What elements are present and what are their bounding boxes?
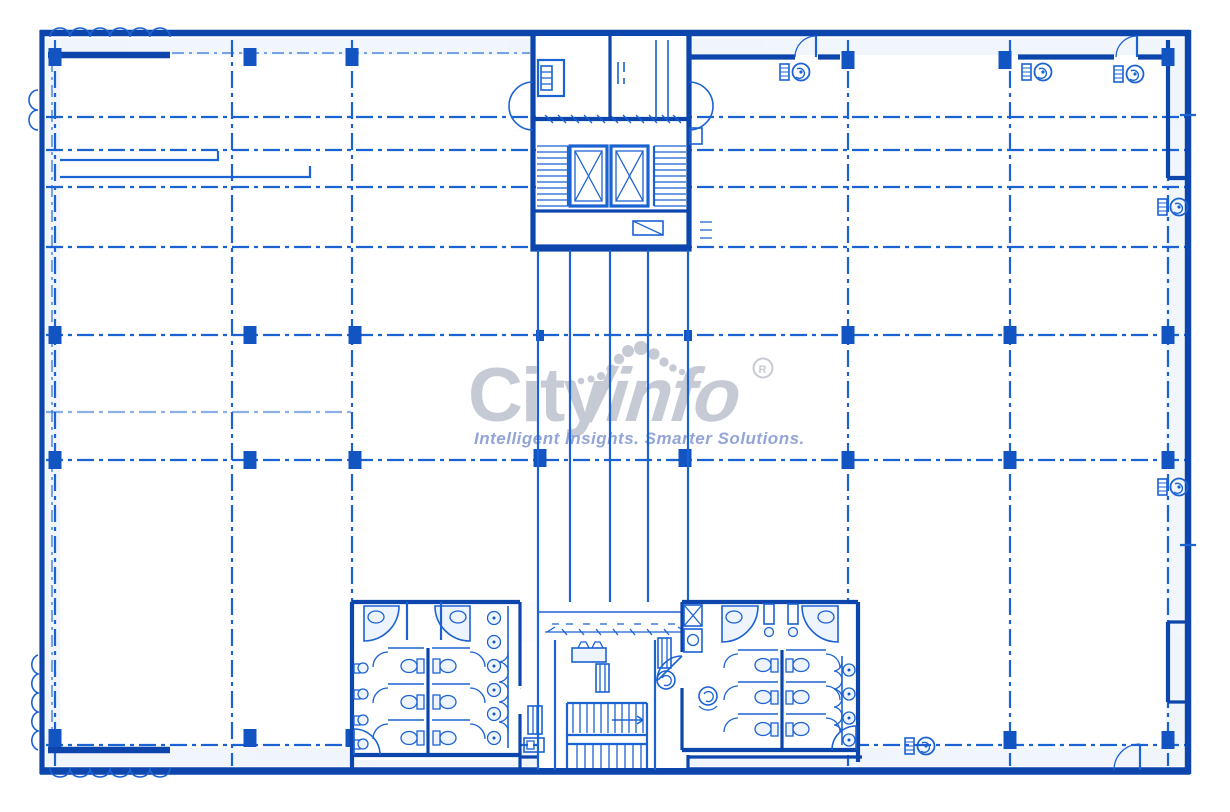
watermark-tagline: Intelligent Insights. Smarter Solutions.	[474, 429, 805, 448]
stepped-ledge-lines	[60, 151, 310, 177]
fan-unit-icon	[1022, 64, 1052, 81]
svg-text:R: R	[759, 364, 767, 376]
core-double-door-right	[689, 82, 713, 144]
fan-unit-icon	[780, 64, 810, 81]
restroom-block-left	[352, 600, 520, 768]
core-double-door-left	[509, 82, 533, 130]
floor-plan-canvas: City /info R Intelligent Insights. Smart…	[0, 0, 1230, 812]
fan-unit-icon	[1114, 66, 1144, 83]
blueprint-page: City /info R Intelligent Insights. Smart…	[0, 0, 1230, 812]
elevator-core	[509, 33, 713, 249]
left-wall-scallops	[29, 90, 38, 750]
registered-trademark-icon: R	[754, 359, 773, 378]
restroom-block-right	[682, 600, 858, 762]
cityinfo-watermark: City /info R Intelligent Insights. Smart…	[468, 341, 805, 448]
